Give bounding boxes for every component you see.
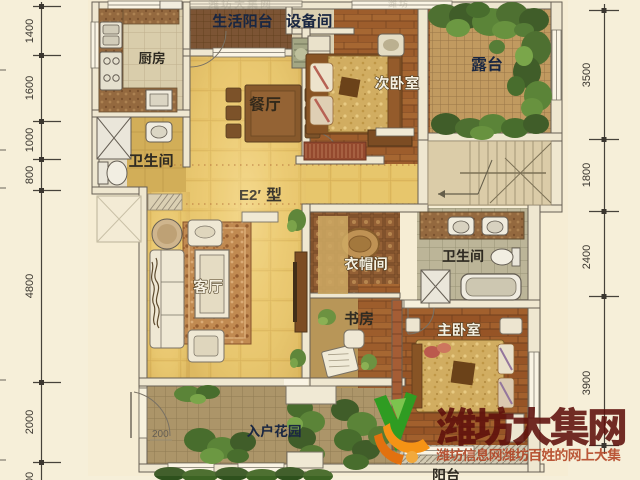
svg-text:1800: 1800 — [581, 163, 593, 187]
svg-text:1400: 1400 — [24, 19, 36, 43]
svg-text:3500: 3500 — [581, 63, 593, 87]
svg-text:800: 800 — [24, 166, 36, 184]
svg-text:3900: 3900 — [581, 371, 593, 395]
svg-text:00: 00 — [24, 472, 36, 480]
svg-text:1600: 1600 — [24, 76, 36, 100]
svg-text:2000: 2000 — [24, 410, 36, 434]
svg-text:2400: 2400 — [581, 245, 593, 269]
svg-text:4800: 4800 — [24, 274, 36, 298]
svg-text:1000: 1000 — [24, 128, 36, 152]
